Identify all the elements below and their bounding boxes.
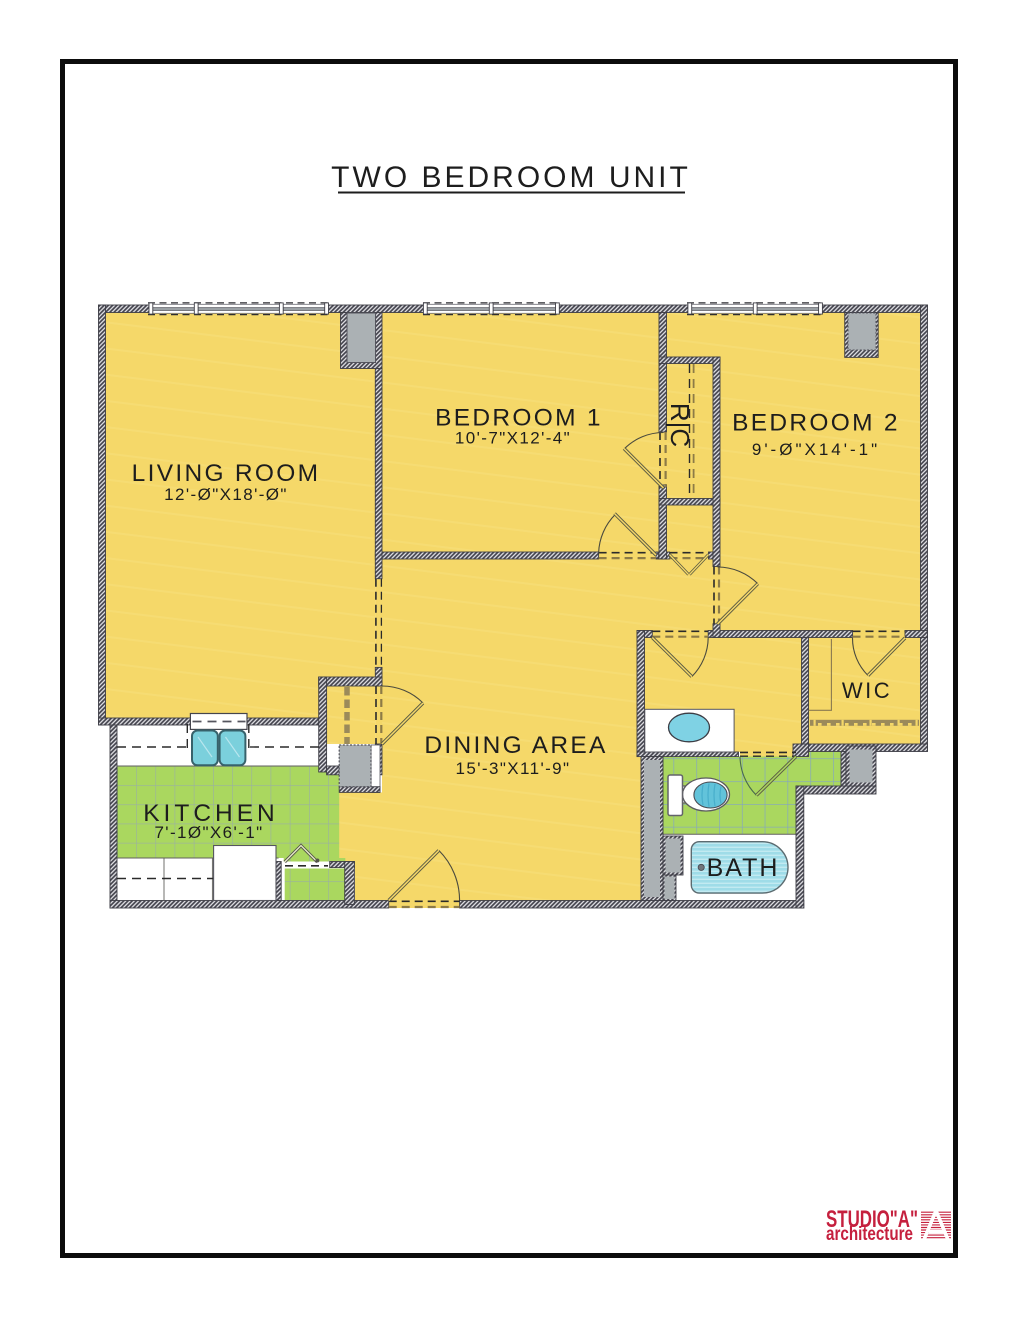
svg-text:DINING AREA: DINING AREA — [424, 732, 607, 759]
svg-text:R|C: R|C — [665, 403, 695, 447]
svg-text:12'-Ø"X18'-Ø": 12'-Ø"X18'-Ø" — [164, 485, 288, 504]
svg-text:LIVING ROOM: LIVING ROOM — [132, 460, 321, 487]
svg-text:7'-1Ø"X6'-1": 7'-1Ø"X6'-1" — [154, 823, 263, 842]
svg-text:WIC: WIC — [842, 678, 892, 703]
svg-text:architecture: architecture — [826, 1224, 913, 1245]
svg-text:9'-Ø"X14'-1": 9'-Ø"X14'-1" — [752, 440, 880, 459]
svg-text:10'-7"X12'-4": 10'-7"X12'-4" — [455, 429, 571, 448]
svg-text:TWO BEDROOM UNIT: TWO BEDROOM UNIT — [331, 161, 691, 194]
svg-text:BEDROOM 2: BEDROOM 2 — [732, 410, 900, 437]
svg-text:BEDROOM 1: BEDROOM 1 — [435, 405, 603, 432]
svg-text:BATH: BATH — [707, 854, 780, 882]
svg-text:15'-3"X11'-9": 15'-3"X11'-9" — [456, 759, 571, 778]
